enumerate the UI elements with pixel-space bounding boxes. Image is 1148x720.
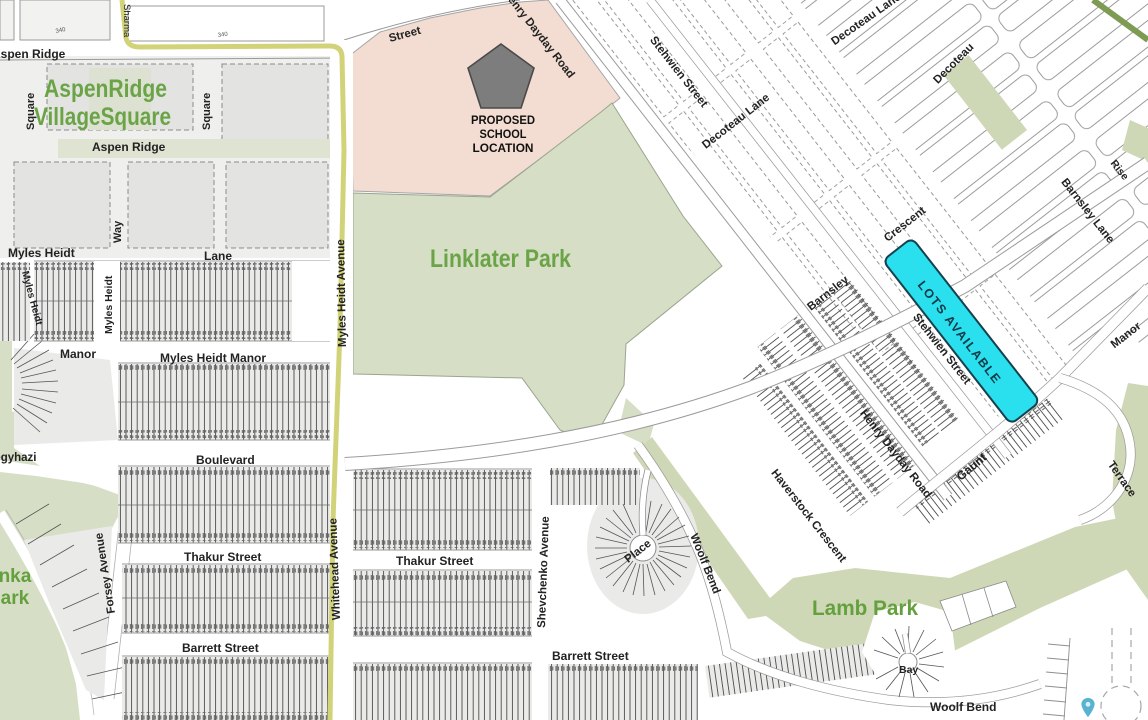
svg-text:SCHOOL: SCHOOL [480, 127, 527, 141]
svg-text:Aspen Ridge: Aspen Ridge [92, 140, 166, 154]
svg-text:Lamb Park: Lamb Park [812, 597, 918, 620]
svg-text:AspenRidge: AspenRidge [44, 75, 167, 103]
svg-text:Barrett Street: Barrett Street [552, 649, 629, 663]
svg-text:Boulevard: Boulevard [196, 453, 255, 467]
svg-text:LOCATION: LOCATION [473, 141, 534, 155]
svg-text:Barrett Street: Barrett Street [182, 641, 259, 655]
svg-text:Thakur Street: Thakur Street [184, 550, 261, 564]
svg-text:Way: Way [112, 220, 124, 243]
svg-text:Manor: Manor [60, 347, 96, 361]
svg-text:Linklater Park: Linklater Park [430, 245, 571, 273]
svg-text:Myles Heidt: Myles Heidt [8, 246, 75, 260]
svg-text:Myles Heidt: Myles Heidt [103, 275, 115, 334]
svg-text:Myles Heidt Manor: Myles Heidt Manor [160, 351, 266, 365]
svg-text:Lane: Lane [204, 249, 232, 263]
svg-text:Hegyhazi: Hegyhazi [0, 452, 37, 464]
svg-text:Park: Park [0, 588, 30, 609]
svg-text:Myles Heidt Avenue: Myles Heidt Avenue [335, 239, 349, 347]
svg-text:Woolf Bend: Woolf Bend [930, 700, 996, 714]
svg-text:Square: Square [201, 93, 213, 130]
svg-text:anka: anka [0, 566, 32, 587]
svg-text:Bay: Bay [899, 664, 918, 676]
svg-text:PROPOSED: PROPOSED [471, 113, 535, 127]
svg-text:Aspen Ridge: Aspen Ridge [0, 47, 66, 61]
svg-text:Sharma: Sharma [121, 4, 132, 38]
svg-text:Thakur Street: Thakur Street [396, 554, 473, 568]
svg-text:VillageSquare: VillageSquare [34, 103, 171, 131]
